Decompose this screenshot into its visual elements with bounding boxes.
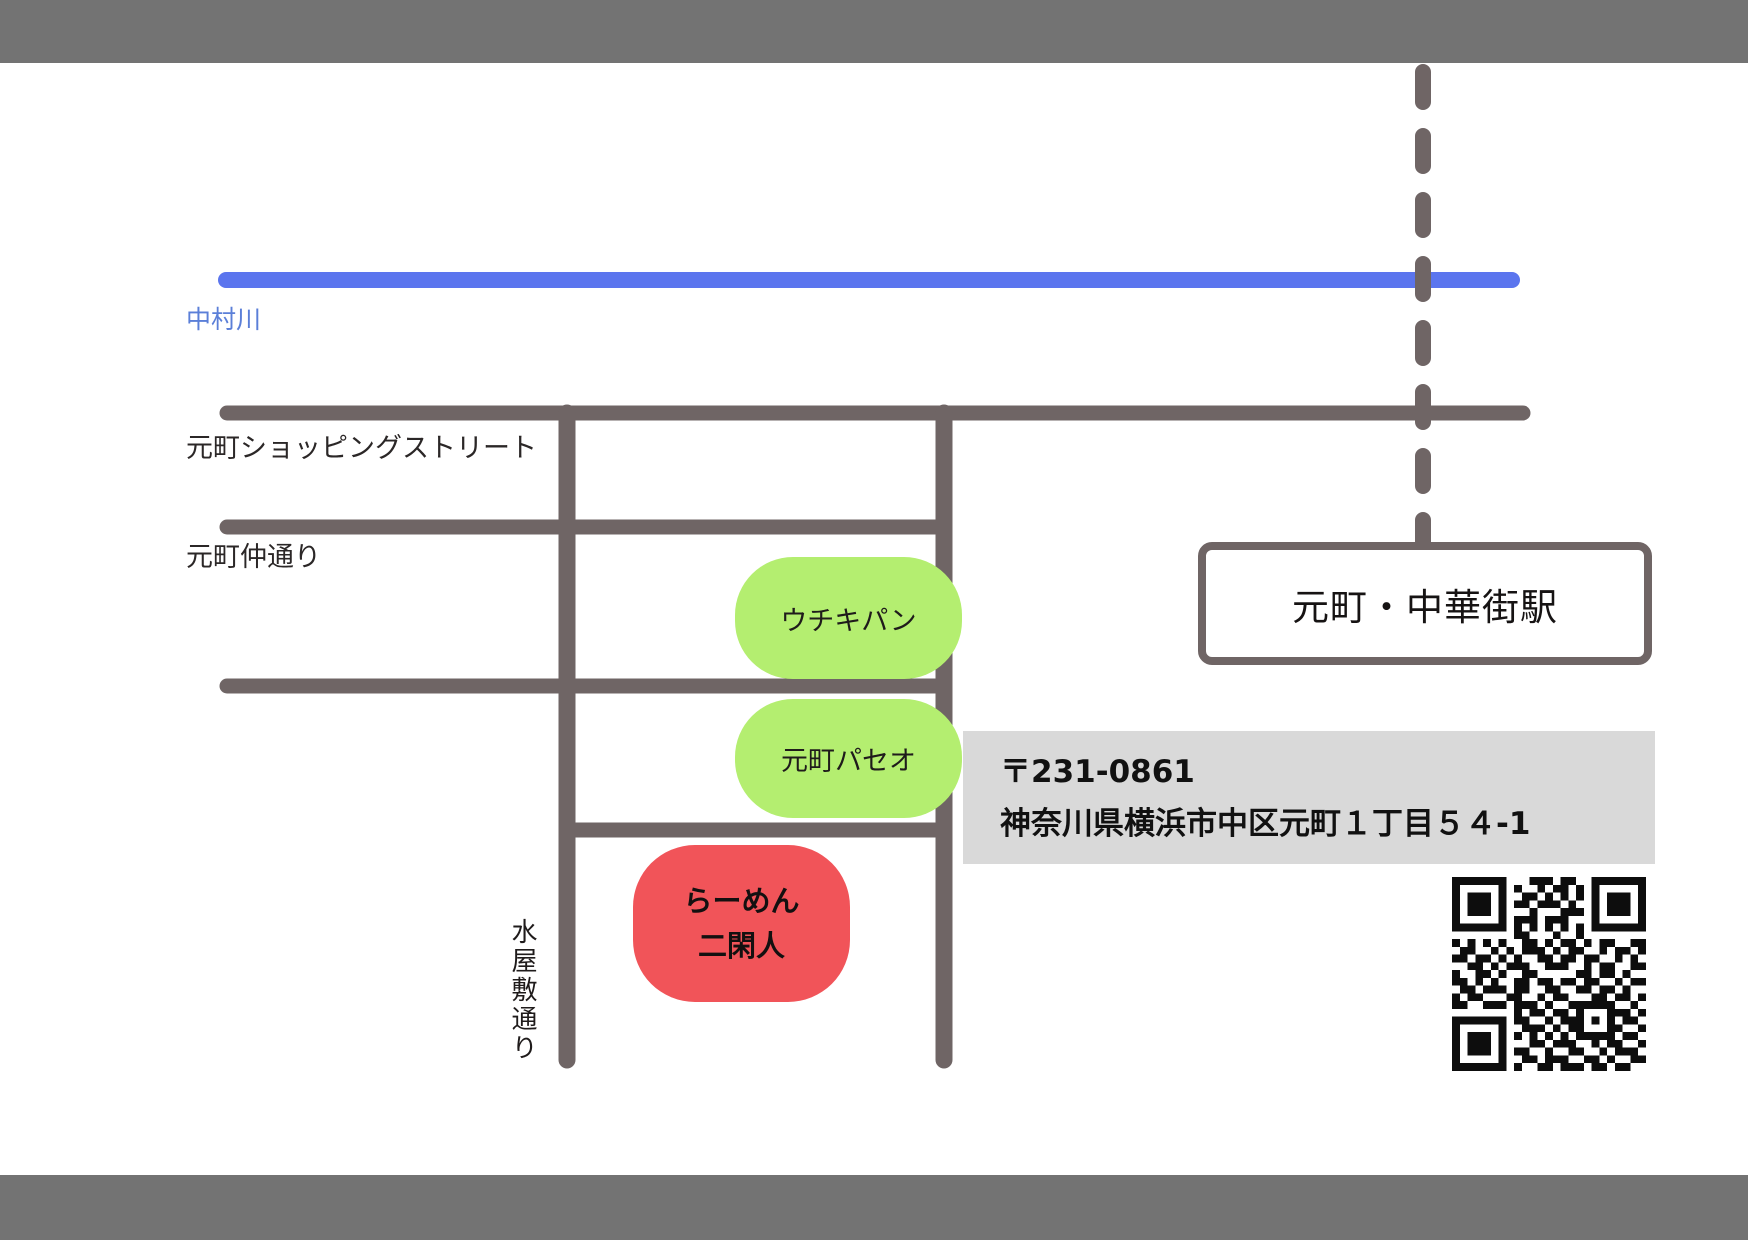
- address-line: 神奈川県横浜市中区元町１丁目５４-1: [1000, 798, 1655, 850]
- poi-uchiki-pan-label: ウチキパン: [780, 599, 916, 638]
- ramen-label-line1: らーめん: [683, 879, 799, 924]
- ramen-label-line2: 二閑人: [698, 924, 785, 969]
- poi-ramen-nikanjin: らーめん 二閑人: [633, 845, 850, 1002]
- mizuyashiki-street-label: 水屋敷通り: [504, 918, 541, 1063]
- station-box: 元町・中華街駅: [1198, 542, 1652, 665]
- address-box: 〒231-0861 神奈川県横浜市中区元町１丁目５４-1: [963, 731, 1655, 864]
- river-label: 中村川: [186, 300, 261, 336]
- poi-motomachi-paseo-label: 元町パセオ: [781, 739, 916, 778]
- station-label: 元町・中華街駅: [1292, 577, 1558, 631]
- access-map: 中村川 元町ショッピングストリート 元町仲通り 水屋敷通り ウチキパン 元町パセ…: [0, 0, 1748, 1240]
- shopping-street-label: 元町ショッピングストリート: [186, 426, 537, 465]
- poi-uchiki-pan: ウチキパン: [735, 557, 962, 679]
- postal-code: 〒231-0861: [1000, 746, 1655, 798]
- nakadori-label: 元町仲通り: [186, 535, 321, 574]
- poi-motomachi-paseo: 元町パセオ: [735, 699, 962, 818]
- qr-code: [1452, 877, 1646, 1071]
